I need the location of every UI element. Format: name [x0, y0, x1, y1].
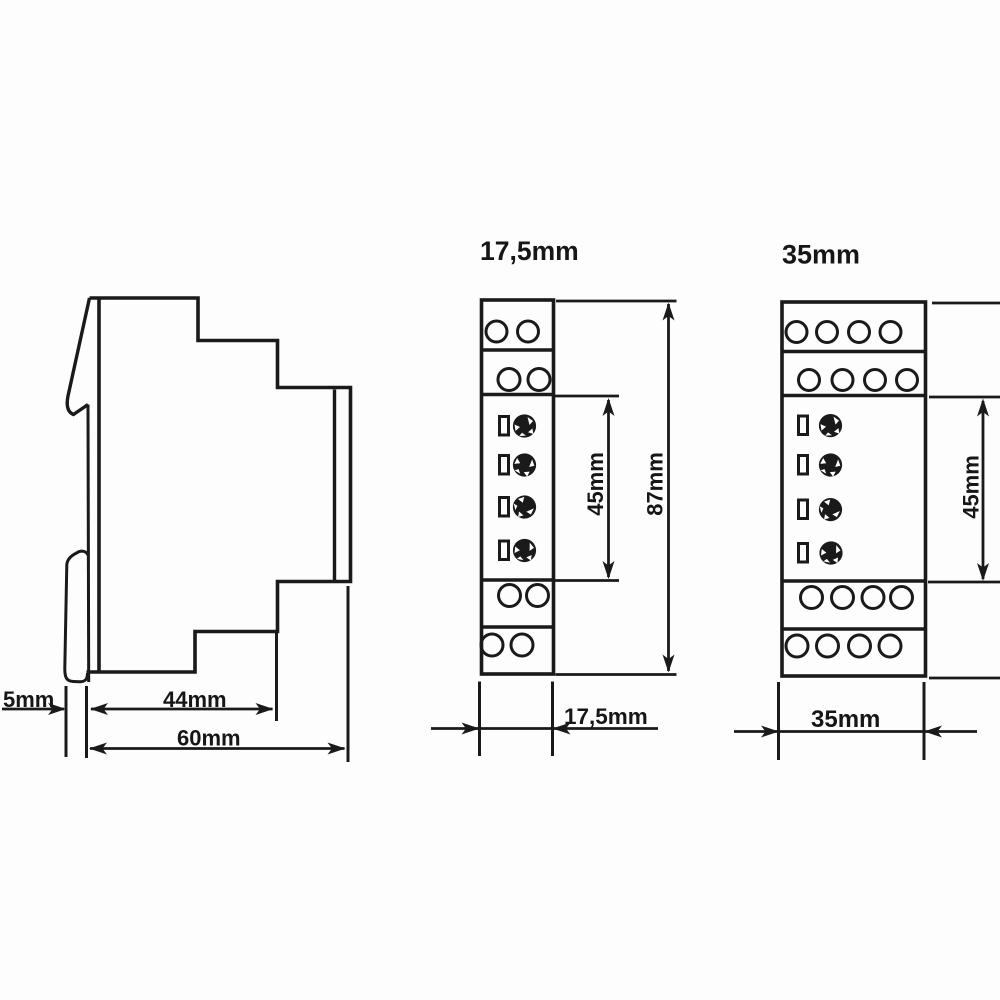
- svg-text:35mm: 35mm: [811, 706, 880, 733]
- svg-text:17,5mm: 17,5mm: [480, 236, 579, 266]
- svg-text:60mm: 60mm: [177, 726, 241, 751]
- svg-text:17,5mm: 17,5mm: [564, 704, 648, 729]
- svg-text:45mm: 45mm: [958, 455, 983, 519]
- svg-text:35mm: 35mm: [782, 240, 860, 270]
- svg-text:87mm: 87mm: [642, 452, 667, 516]
- svg-text:44mm: 44mm: [163, 687, 227, 712]
- svg-text:5mm: 5mm: [3, 687, 54, 712]
- svg-text:45mm: 45mm: [583, 452, 608, 516]
